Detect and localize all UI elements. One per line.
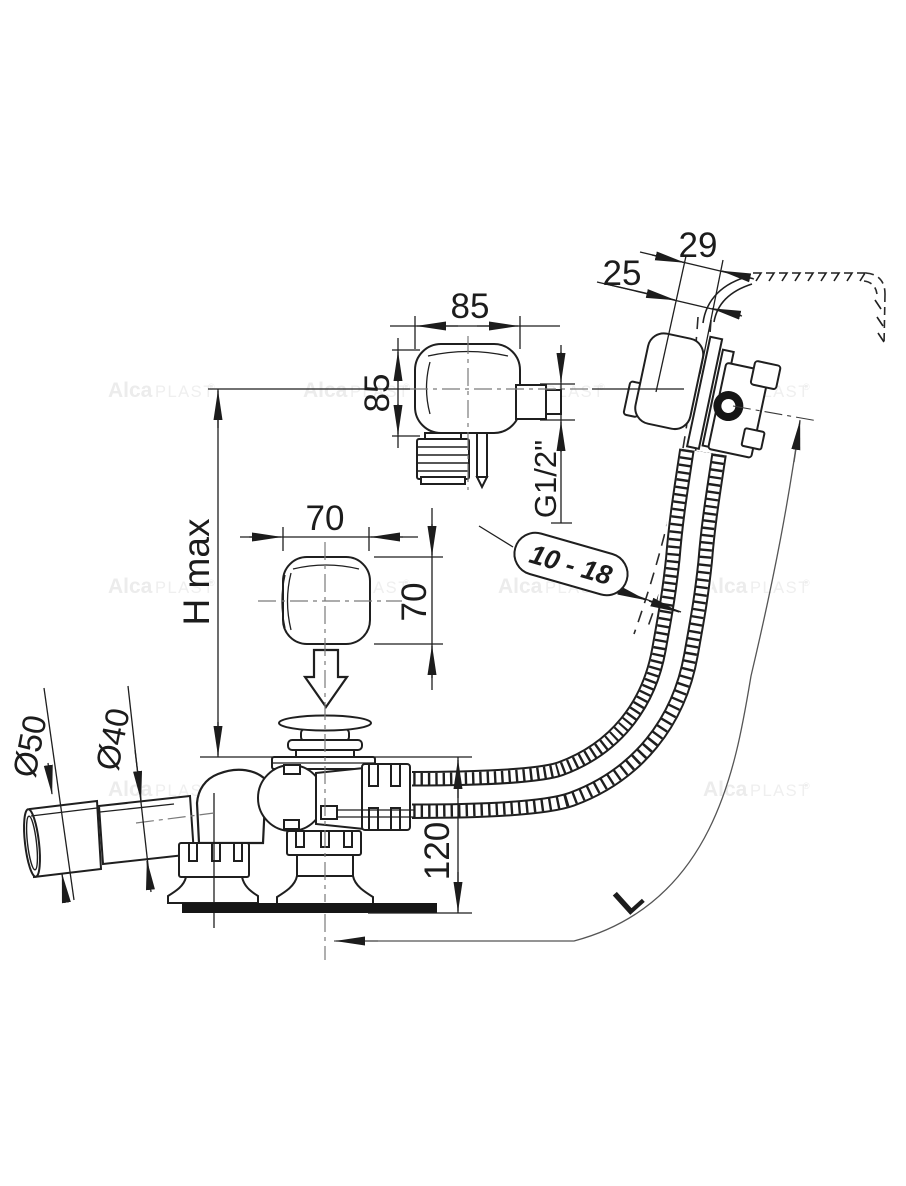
tub-floor-section (182, 903, 437, 913)
watermark-alca: Alca (108, 778, 153, 801)
watermark-reg: ® (803, 578, 810, 588)
watermark-reg: ® (208, 382, 215, 392)
watermark-reg: ® (598, 382, 605, 392)
watermark-reg: ® (803, 382, 810, 392)
watermark-reg: ® (403, 382, 410, 392)
watermark-plast: PLAST (750, 782, 810, 800)
watermark-alca: Alca (108, 575, 153, 598)
dim-label-29: 29 (679, 226, 718, 265)
dimension-70-height: 70 (374, 508, 443, 690)
dim-label-dia50: Ø50 (5, 712, 53, 780)
assembly-direction-arrow (305, 650, 347, 707)
overflow-pin (477, 433, 487, 477)
control-knob-view (282, 557, 370, 707)
dim-label-25: 25 (603, 254, 642, 293)
tub-rim-break-dashes (753, 273, 865, 281)
dimension-g12: G1/2" (528, 345, 575, 523)
elbow-bell (168, 877, 258, 903)
overflow-bolt (741, 428, 764, 450)
dimension-L: L (334, 420, 800, 941)
dim-label-dia40: Ø40 (88, 705, 136, 773)
outlet-pipe (21, 796, 194, 878)
dimension-hmax: H max (176, 389, 273, 757)
watermark-plast: PLAST (155, 383, 215, 401)
dim-label-g12: G1/2" (528, 440, 563, 518)
watermark-alca: Alca (498, 575, 543, 598)
watermark-plast: PLAST (750, 579, 810, 597)
watermark-reg: ® (803, 781, 810, 791)
dim-label-L: L (606, 877, 651, 924)
watermark-alca: Alca (108, 379, 153, 402)
dimension-70-width: 70 (240, 499, 418, 551)
wall-thickness-callout: 10 - 18 (479, 526, 681, 612)
outlet-elbow (197, 770, 266, 843)
dimension-85-height: 85 (358, 338, 420, 448)
overflow-unit (620, 322, 784, 461)
dim-label-70-height: 70 (395, 583, 434, 622)
side-outlet-tip (546, 390, 561, 414)
dim-label-120: 120 (418, 822, 457, 880)
side-outlet (516, 385, 546, 419)
dim-label-70-width: 70 (306, 499, 345, 538)
overflow-bracket (750, 361, 780, 390)
cable-anchor (321, 806, 337, 819)
dim-label-hmax: H max (176, 518, 217, 625)
dimension-85-width: 85 (390, 287, 560, 349)
watermark-alca: Alca (303, 379, 348, 402)
overflow-hose-stub (417, 439, 469, 479)
drawing-canvas: AlcaPLAST® AlcaPLAST® AlcaPLAST® AlcaPLA… (0, 0, 906, 1186)
technical-drawing-page: AlcaPLAST® AlcaPLAST® AlcaPLAST® AlcaPLA… (0, 0, 906, 1186)
dim-label-85-height: 85 (358, 374, 397, 413)
waste-drain-assembly (21, 716, 437, 929)
dim-label-85-width: 85 (451, 287, 490, 326)
